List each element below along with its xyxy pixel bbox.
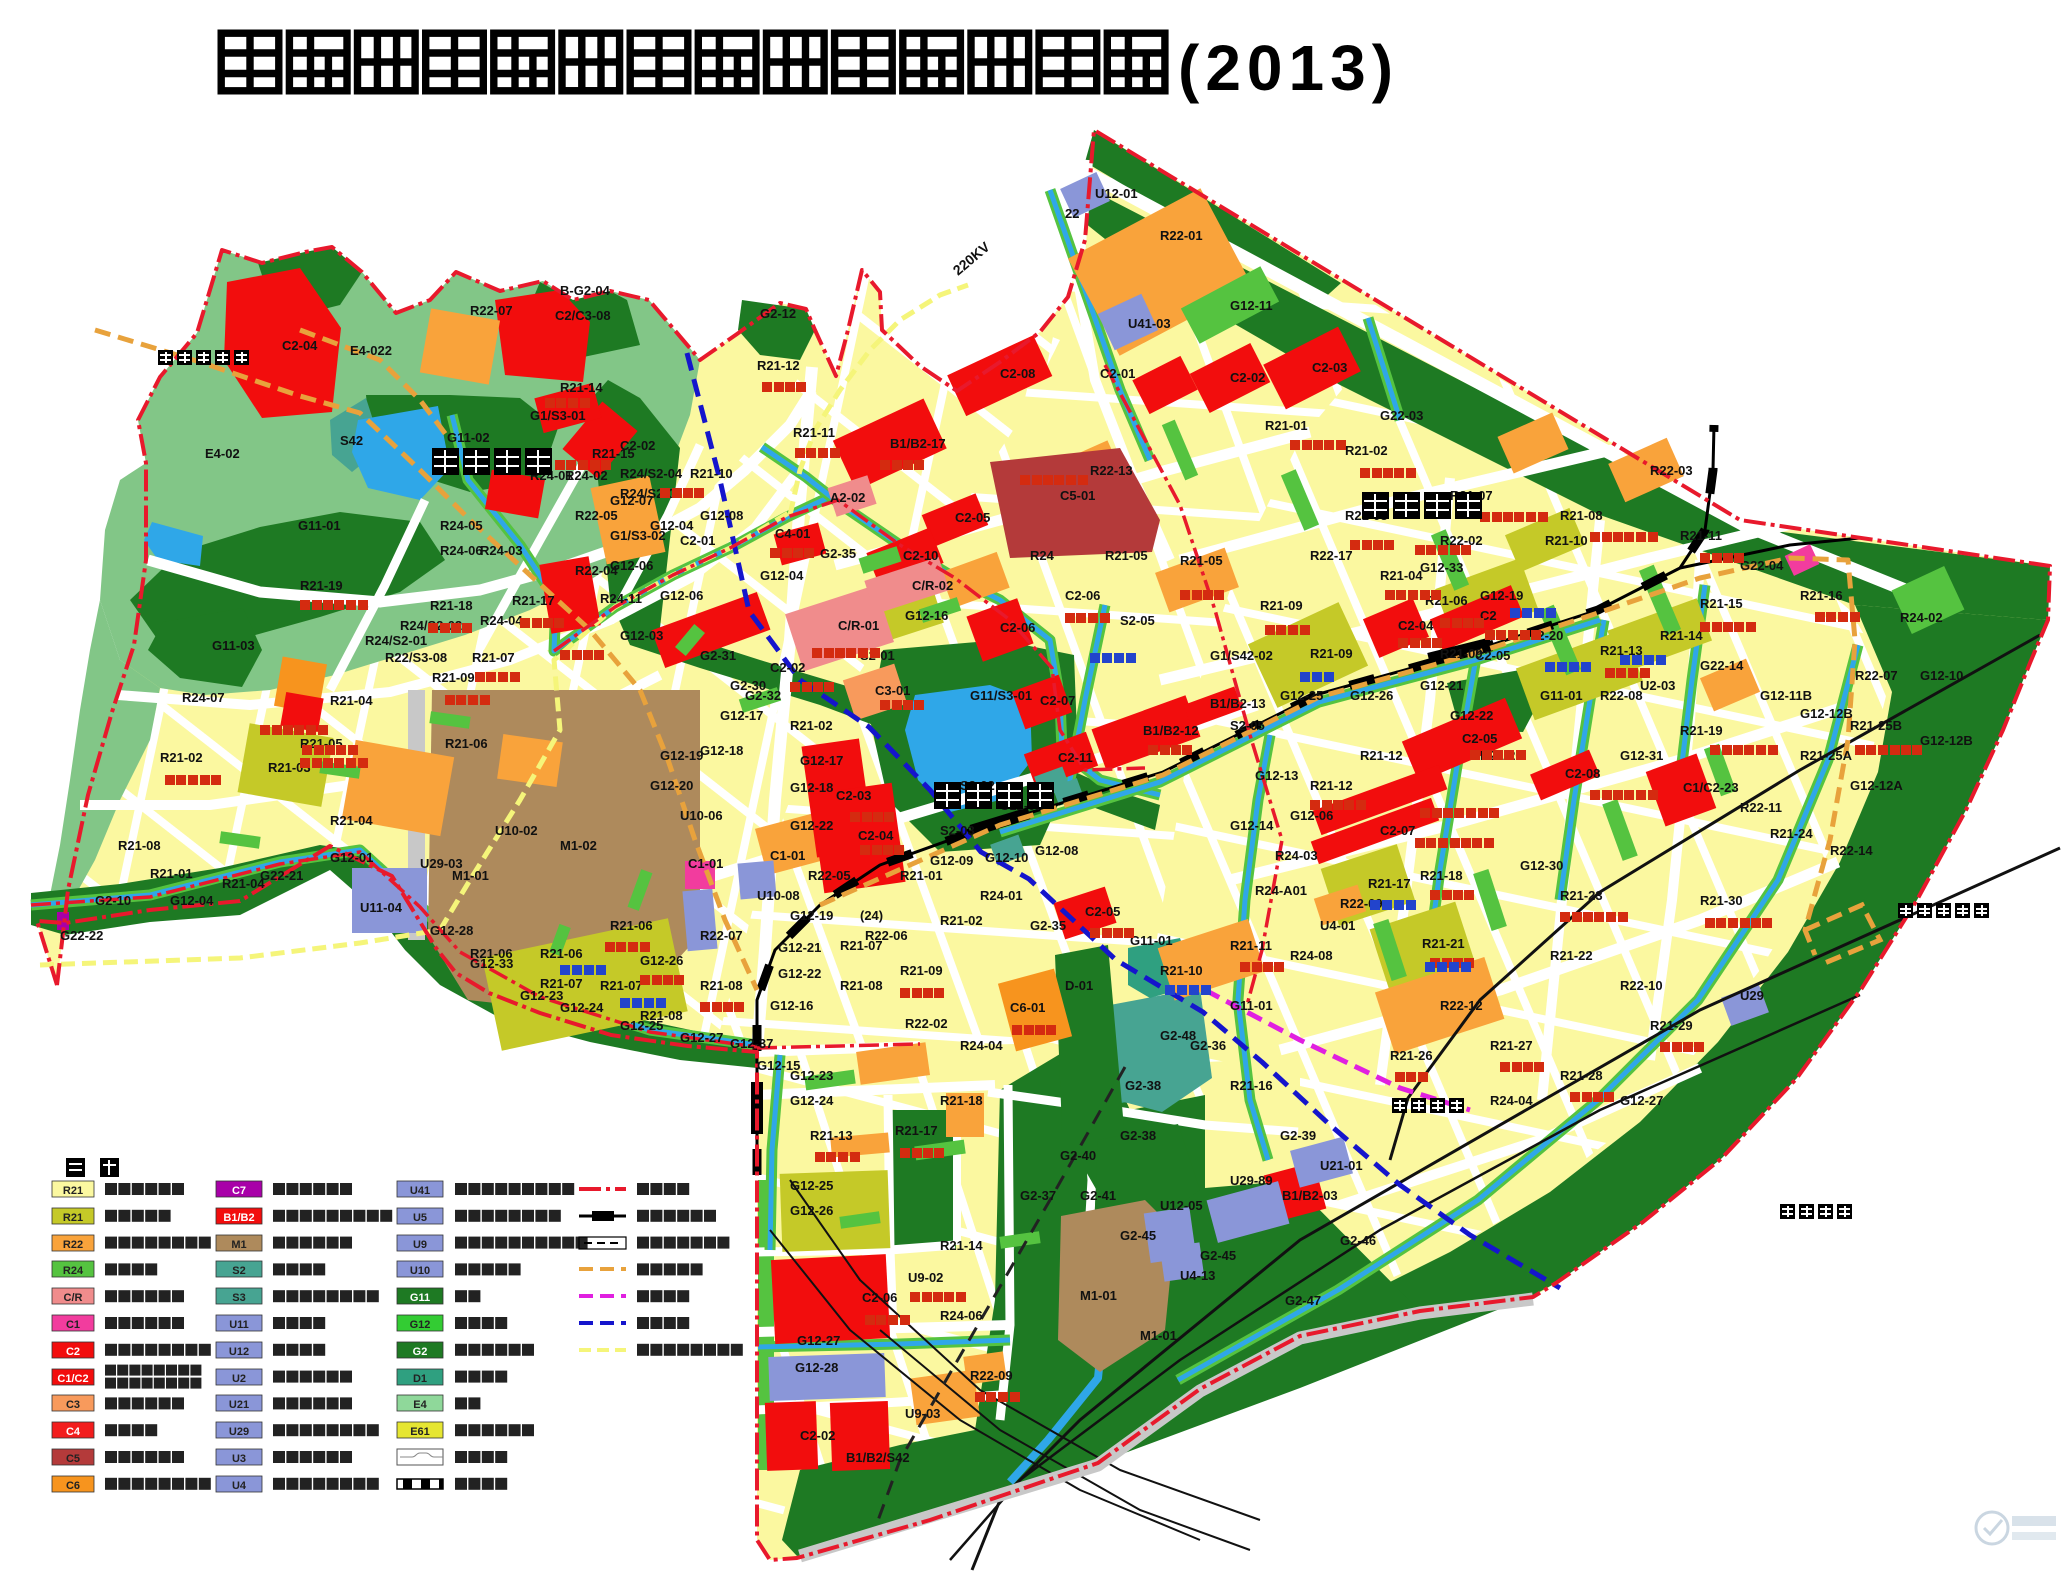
svg-text:U21: U21 [229, 1399, 249, 1411]
svg-text:G12-19: G12-19 [660, 748, 703, 763]
svg-text:G12-12B: G12-12B [1800, 706, 1853, 721]
svg-text:G1/S42-02: G1/S42-02 [1210, 648, 1273, 663]
svg-text:R21-02: R21-02 [940, 913, 983, 928]
svg-text:U11: U11 [229, 1319, 249, 1331]
svg-text:C2-08: C2-08 [1000, 366, 1035, 381]
svg-text:R21-09: R21-09 [1260, 598, 1303, 613]
svg-text:G11/S3-01: G11/S3-01 [970, 688, 1032, 703]
svg-text:G2-10: G2-10 [95, 893, 131, 908]
svg-text:R21-16: R21-16 [1230, 1078, 1273, 1093]
svg-text:B1/B2: B1/B2 [223, 1212, 254, 1224]
svg-text:C2-08: C2-08 [1565, 766, 1600, 781]
svg-text:R22-09: R22-09 [970, 1368, 1013, 1383]
svg-text:R21-05: R21-05 [1105, 548, 1148, 563]
svg-text:G12-06: G12-06 [660, 588, 703, 603]
svg-text:R21-17: R21-17 [895, 1123, 938, 1138]
svg-text:R21-09: R21-09 [432, 670, 475, 685]
svg-text:C1: C1 [66, 1319, 80, 1331]
svg-text:G12-25: G12-25 [1280, 688, 1323, 703]
svg-text:R21-27: R21-27 [1490, 1038, 1533, 1053]
svg-text:R21-12: R21-12 [757, 358, 800, 373]
svg-text:R21-29: R21-29 [1650, 1018, 1693, 1033]
svg-text:R21-13: R21-13 [810, 1128, 853, 1143]
svg-text:R21-09: R21-09 [900, 963, 943, 978]
svg-text:R21-04: R21-04 [1380, 568, 1423, 583]
svg-text:R22-14: R22-14 [1830, 843, 1873, 858]
svg-text:G2-38: G2-38 [1125, 1078, 1161, 1093]
svg-text:R24-07: R24-07 [182, 690, 225, 705]
svg-text:R21: R21 [63, 1212, 83, 1224]
svg-text:R22-11: R22-11 [1740, 800, 1782, 815]
svg-text:S42: S42 [340, 433, 363, 448]
svg-text:G22-04: G22-04 [1740, 558, 1784, 573]
svg-text:R22-08: R22-08 [1600, 688, 1643, 703]
svg-text:R21-19: R21-19 [1680, 723, 1723, 738]
svg-text:U9: U9 [413, 1239, 427, 1251]
svg-text:R21-05: R21-05 [1180, 553, 1223, 568]
svg-text:G22-14: G22-14 [1700, 658, 1744, 673]
svg-text:G11-01: G11-01 [1540, 688, 1583, 703]
svg-text:C2-10: C2-10 [903, 548, 938, 563]
svg-text:R24-04: R24-04 [480, 613, 523, 628]
svg-text:U21-01: U21-01 [1320, 1158, 1363, 1173]
svg-text:U2-03: U2-03 [1640, 678, 1675, 693]
svg-text:R21-09: R21-09 [1310, 646, 1353, 661]
svg-text:M1: M1 [231, 1239, 246, 1251]
svg-text:R21-02: R21-02 [160, 750, 203, 765]
svg-text:C1-01: C1-01 [770, 848, 805, 863]
svg-text:G12-01: G12-01 [330, 850, 373, 865]
svg-text:G12-04: G12-04 [760, 568, 804, 583]
svg-text:U10-06: U10-06 [680, 808, 723, 823]
svg-text:R24-02: R24-02 [1900, 610, 1943, 625]
svg-text:R22-05: R22-05 [808, 868, 851, 883]
svg-text:G2-45: G2-45 [1120, 1228, 1156, 1243]
svg-text:G2-45: G2-45 [1200, 1248, 1236, 1263]
svg-text:U2: U2 [232, 1373, 246, 1385]
svg-text:R22-13: R22-13 [1090, 463, 1133, 478]
svg-text:C2-07: C2-07 [1040, 693, 1075, 708]
svg-text:B1/B2/S42: B1/B2/S42 [846, 1450, 910, 1465]
svg-text:C3: C3 [66, 1399, 80, 1411]
svg-text:G12-04: G12-04 [650, 518, 694, 533]
svg-text:R21-04: R21-04 [222, 876, 265, 891]
svg-text:C2-01: C2-01 [1100, 366, 1135, 381]
svg-text:R21-10: R21-10 [1160, 963, 1203, 978]
svg-text:C2-11: C2-11 [1058, 750, 1093, 765]
svg-text:G2: G2 [413, 1346, 428, 1358]
svg-text:G12-24: G12-24 [560, 1000, 604, 1015]
svg-text:R24-01: R24-01 [980, 888, 1023, 903]
svg-text:G2-37: G2-37 [1020, 1188, 1056, 1203]
svg-text:R24-08: R24-08 [1290, 948, 1333, 963]
svg-text:R24-02: R24-02 [565, 468, 608, 483]
svg-text:R21-02: R21-02 [1345, 443, 1388, 458]
svg-text:C2-03: C2-03 [1312, 360, 1347, 375]
svg-text:U12: U12 [229, 1346, 249, 1358]
svg-text:G12-10: G12-10 [1920, 668, 1963, 683]
svg-text:C2-04: C2-04 [858, 828, 894, 843]
svg-text:G2-35: G2-35 [1030, 918, 1066, 933]
svg-text:S2-03: S2-03 [940, 823, 975, 838]
svg-text:G12-03: G12-03 [620, 628, 663, 643]
svg-text:R21-10: R21-10 [690, 466, 733, 481]
svg-text:R24/S2-01: R24/S2-01 [365, 633, 427, 648]
svg-text:22: 22 [1065, 206, 1079, 221]
svg-text:G12-08: G12-08 [700, 508, 743, 523]
svg-text:(24): (24) [860, 908, 883, 923]
svg-text:G12-37: G12-37 [730, 1036, 773, 1051]
svg-text:G12-21: G12-21 [1420, 678, 1463, 693]
svg-text:C5: C5 [66, 1453, 80, 1465]
svg-text:G12-24: G12-24 [790, 1093, 834, 1108]
svg-text:C2-05: C2-05 [955, 510, 990, 525]
svg-text:R21-02: R21-02 [790, 718, 833, 733]
svg-text:D1: D1 [413, 1373, 427, 1385]
svg-text:R22-10: R22-10 [1620, 978, 1663, 993]
svg-text:U4-13: U4-13 [1180, 1268, 1215, 1283]
svg-text:G2-31: G2-31 [700, 648, 736, 663]
svg-text:C4-01: C4-01 [775, 526, 810, 541]
svg-text:R22-17: R22-17 [1310, 548, 1353, 563]
svg-text:R22/S3-08: R22/S3-08 [385, 650, 447, 665]
svg-text:C2-05: C2-05 [1475, 648, 1510, 663]
svg-text:G12-22: G12-22 [1450, 708, 1493, 723]
svg-text:G12-17: G12-17 [720, 708, 763, 723]
svg-text:R22-12: R22-12 [1440, 998, 1483, 1013]
svg-text:R21-04: R21-04 [330, 813, 373, 828]
svg-text:G11-02: G11-02 [447, 430, 490, 445]
svg-text:R24-03: R24-03 [480, 543, 523, 558]
svg-text:R22: R22 [63, 1239, 83, 1251]
svg-text:C4: C4 [66, 1426, 81, 1438]
svg-text:R21-23: R21-23 [1560, 888, 1603, 903]
svg-text:C1/C2-23: C1/C2-23 [1683, 780, 1739, 795]
svg-text:R24: R24 [63, 1265, 84, 1277]
svg-text:R21-28: R21-28 [1560, 1068, 1603, 1083]
svg-text:M1-01: M1-01 [1080, 1288, 1117, 1303]
svg-text:(2013): (2013) [1178, 32, 1399, 104]
svg-text:R22-07: R22-07 [700, 928, 743, 943]
svg-text:B1/B2-03: B1/B2-03 [1282, 1188, 1338, 1203]
svg-text:G2-35: G2-35 [820, 546, 856, 561]
svg-text:C2/C3-08: C2/C3-08 [555, 308, 611, 323]
svg-text:G12-26: G12-26 [1350, 688, 1393, 703]
svg-text:R21-06: R21-06 [540, 946, 583, 961]
svg-text:C2-05: C2-05 [1085, 904, 1120, 919]
svg-text:G12-18: G12-18 [700, 743, 743, 758]
svg-text:G12-06: G12-06 [610, 558, 653, 573]
svg-text:E4-022: E4-022 [350, 343, 392, 358]
svg-text:G12-06: G12-06 [1290, 808, 1333, 823]
svg-text:U9-02: U9-02 [908, 1270, 943, 1285]
svg-text:U5: U5 [413, 1212, 427, 1224]
svg-text:G11-03: G11-03 [212, 638, 255, 653]
svg-text:C5-01: C5-01 [1060, 488, 1095, 503]
svg-text:U10-02: U10-02 [495, 823, 538, 838]
svg-text:U4-01: U4-01 [1320, 918, 1355, 933]
svg-text:D-01: D-01 [1065, 978, 1093, 993]
svg-text:R21-07: R21-07 [600, 978, 643, 993]
svg-text:R21-18: R21-18 [430, 598, 473, 613]
svg-text:M1-01: M1-01 [452, 868, 489, 883]
svg-text:G2-39: G2-39 [1280, 1128, 1316, 1143]
svg-text:G12-23: G12-23 [520, 988, 563, 1003]
svg-text:R21-18: R21-18 [940, 1093, 983, 1108]
svg-text:G12-20: G12-20 [650, 778, 693, 793]
svg-text:G12-28: G12-28 [430, 923, 473, 938]
svg-text:G12: G12 [410, 1319, 431, 1331]
svg-text:R21-15: R21-15 [1700, 596, 1743, 611]
svg-text:C2-02: C2-02 [1230, 370, 1265, 385]
svg-text:C2-06: C2-06 [1000, 620, 1035, 635]
svg-text:C2-04: C2-04 [1398, 618, 1434, 633]
svg-text:G12-11: G12-11 [1230, 298, 1273, 313]
svg-text:U29: U29 [1740, 988, 1764, 1003]
svg-text:R22-07: R22-07 [1855, 668, 1898, 683]
svg-text:E61: E61 [410, 1426, 430, 1438]
svg-text:G12-12A: G12-12A [1850, 778, 1903, 793]
svg-text:R21-10: R21-10 [1545, 533, 1588, 548]
svg-text:G12-09: G12-09 [930, 853, 973, 868]
svg-text:G2-12: G2-12 [760, 306, 796, 321]
svg-text:G12-19: G12-19 [790, 908, 833, 923]
svg-text:C/R-02: C/R-02 [912, 578, 953, 593]
svg-text:C2-02: C2-02 [800, 1428, 835, 1443]
svg-text:R21: R21 [63, 1185, 83, 1197]
svg-text:R22-01: R22-01 [1160, 228, 1203, 243]
svg-text:R21-08: R21-08 [700, 978, 743, 993]
svg-text:R24-06: R24-06 [940, 1308, 983, 1323]
svg-text:U3: U3 [232, 1453, 246, 1465]
svg-text:R24/S2-04: R24/S2-04 [620, 466, 683, 481]
svg-text:S2: S2 [232, 1265, 245, 1277]
svg-text:C7: C7 [232, 1185, 246, 1197]
svg-text:C2-01: C2-01 [680, 533, 715, 548]
svg-text:R24-11: R24-11 [600, 591, 642, 606]
svg-text:G12-16: G12-16 [905, 608, 948, 623]
svg-text:G12-33: G12-33 [1420, 560, 1463, 575]
svg-text:G2-46: G2-46 [1340, 1233, 1376, 1248]
svg-text:G11-01: G11-01 [298, 518, 341, 533]
svg-text:R21-24: R21-24 [1770, 826, 1813, 841]
svg-text:G2-40: G2-40 [1060, 1148, 1096, 1163]
svg-text:G12-08: G12-08 [1035, 843, 1078, 858]
svg-text:R22-05: R22-05 [575, 508, 618, 523]
svg-text:R24-A01: R24-A01 [1255, 883, 1307, 898]
svg-text:G12-22: G12-22 [778, 966, 821, 981]
svg-text:U10: U10 [410, 1265, 430, 1277]
svg-text:G12-25: G12-25 [620, 1018, 663, 1033]
svg-text:G12-13: G12-13 [1255, 768, 1298, 783]
svg-text:C6-01: C6-01 [1010, 1000, 1045, 1015]
svg-text:R21-17: R21-17 [512, 593, 555, 608]
svg-text:U29-89: U29-89 [1230, 1173, 1273, 1188]
svg-text:C2-03: C2-03 [836, 788, 871, 803]
svg-text:B1/B2-13: B1/B2-13 [1210, 696, 1266, 711]
svg-text:G12-11B: G12-11B [1760, 688, 1812, 703]
svg-text:R21-08: R21-08 [118, 838, 161, 853]
svg-text:G12-17: G12-17 [800, 753, 843, 768]
svg-text:U12-05: U12-05 [1160, 1198, 1203, 1213]
svg-text:B1/B2-12: B1/B2-12 [1143, 723, 1199, 738]
svg-text:R21-18: R21-18 [1420, 868, 1463, 883]
svg-text:R24-04: R24-04 [1490, 1093, 1533, 1108]
svg-text:G11: G11 [410, 1292, 430, 1304]
svg-text:G1/S3-01: G1/S3-01 [530, 408, 586, 423]
svg-text:R21-19: R21-19 [300, 578, 343, 593]
svg-text:G2-30: G2-30 [730, 678, 766, 693]
svg-text:R21-26: R21-26 [1390, 1048, 1433, 1063]
svg-text:U12-01: U12-01 [1095, 186, 1138, 201]
svg-text:R21-25B: R21-25B [1850, 718, 1902, 733]
svg-text:S3: S3 [232, 1292, 245, 1304]
svg-text:G22-03: G22-03 [1380, 408, 1423, 423]
svg-text:C6: C6 [66, 1480, 80, 1492]
svg-text:R22-07: R22-07 [470, 303, 513, 318]
svg-text:R21-25A: R21-25A [1800, 748, 1853, 763]
svg-text:G11-01: G11-01 [1230, 998, 1273, 1013]
svg-text:C1/C2: C1/C2 [57, 1373, 88, 1385]
svg-text:R21-07: R21-07 [472, 650, 515, 665]
svg-text:U9-03: U9-03 [905, 1406, 940, 1421]
svg-text:C2-02: C2-02 [770, 660, 805, 675]
svg-text:C2-02: C2-02 [620, 438, 655, 453]
svg-text:G22-21: G22-21 [260, 868, 303, 883]
svg-text:R24: R24 [1030, 548, 1055, 563]
svg-text:R24-03: R24-03 [1275, 848, 1318, 863]
svg-text:R21-22: R21-22 [1550, 948, 1593, 963]
svg-text:C2-04: C2-04 [282, 338, 318, 353]
svg-text:U4: U4 [232, 1480, 247, 1492]
svg-text:C2-05: C2-05 [1462, 731, 1497, 746]
svg-text:R21-21: R21-21 [1422, 936, 1465, 951]
svg-text:R24-06: R24-06 [440, 543, 483, 558]
svg-text:B1/B2-17: B1/B2-17 [890, 436, 946, 451]
svg-text:E4: E4 [413, 1399, 427, 1411]
svg-text:R21-01: R21-01 [1265, 418, 1308, 433]
svg-text:U41-03: U41-03 [1128, 316, 1171, 331]
svg-text:S2-05: S2-05 [1120, 613, 1155, 628]
svg-text:R21-01: R21-01 [150, 866, 193, 881]
svg-text:G12-04: G12-04 [170, 893, 214, 908]
svg-text:R21-12: R21-12 [1360, 748, 1403, 763]
svg-text:R21-08: R21-08 [840, 978, 883, 993]
svg-text:R21-14: R21-14 [1660, 628, 1703, 643]
svg-text:R21-16: R21-16 [1800, 588, 1843, 603]
svg-text:C/R-01: C/R-01 [838, 618, 879, 633]
svg-text:R21-07: R21-07 [840, 938, 883, 953]
svg-text:U11-04: U11-04 [360, 900, 403, 915]
svg-text:S2-05: S2-05 [1230, 718, 1265, 733]
svg-text:R21-14: R21-14 [940, 1238, 983, 1253]
svg-text:U10-08: U10-08 [757, 888, 800, 903]
svg-text:G12-25: G12-25 [790, 1178, 833, 1193]
svg-text:R24-04: R24-04 [960, 1038, 1003, 1053]
svg-text:G12-14: G12-14 [1230, 818, 1274, 833]
svg-text:U41: U41 [410, 1185, 430, 1197]
svg-text:G12-26: G12-26 [640, 953, 683, 968]
svg-text:G12-21: G12-21 [778, 940, 821, 955]
svg-text:R21-06: R21-06 [445, 736, 488, 751]
svg-text:E4-02: E4-02 [205, 446, 240, 461]
svg-text:G22-22: G22-22 [60, 928, 103, 943]
svg-text:C2: C2 [66, 1346, 80, 1358]
svg-text:R21-17: R21-17 [1368, 876, 1411, 891]
svg-text:M1-02: M1-02 [560, 838, 597, 853]
svg-text:G12-15: G12-15 [757, 1058, 800, 1073]
svg-text:G12-28: G12-28 [795, 1360, 838, 1375]
svg-text:C3-01: C3-01 [875, 683, 910, 698]
svg-text:G11-01: G11-01 [1130, 933, 1173, 948]
svg-text:G12-27: G12-27 [797, 1333, 840, 1348]
svg-text:G12-26: G12-26 [790, 1203, 833, 1218]
svg-text:G12-10: G12-10 [985, 850, 1028, 865]
svg-text:G2-38: G2-38 [1120, 1128, 1156, 1143]
svg-text:R21-04: R21-04 [330, 693, 373, 708]
svg-text:G12-22: G12-22 [790, 818, 833, 833]
svg-text:G12-19: G12-19 [1480, 588, 1523, 603]
svg-text:R21-12: R21-12 [1310, 778, 1353, 793]
svg-text:R22-03: R22-03 [1650, 463, 1693, 478]
svg-text:R21-06: R21-06 [610, 918, 653, 933]
svg-text:M1-01: M1-01 [1140, 1328, 1177, 1343]
svg-text:G12-27: G12-27 [680, 1030, 723, 1045]
svg-text:G2-36: G2-36 [1190, 1038, 1226, 1053]
svg-text:R24-05: R24-05 [440, 518, 483, 533]
svg-text:G12-33: G12-33 [470, 956, 513, 971]
svg-text:C2-07: C2-07 [1380, 823, 1415, 838]
svg-text:R21-01: R21-01 [900, 868, 943, 883]
svg-text:R21-08: R21-08 [1560, 508, 1603, 523]
svg-text:G12-30: G12-30 [1520, 858, 1563, 873]
svg-text:G12-31: G12-31 [1620, 748, 1663, 763]
svg-text:R21-11: R21-11 [1680, 528, 1722, 543]
svg-text:U29: U29 [229, 1426, 249, 1438]
svg-text:G2-41: G2-41 [1080, 1188, 1116, 1203]
svg-text:C2-06: C2-06 [862, 1290, 897, 1305]
svg-text:B-G2-04: B-G2-04 [560, 283, 611, 298]
svg-text:A2-02: A2-02 [830, 490, 865, 505]
svg-text:C/R: C/R [64, 1292, 83, 1304]
svg-text:G2-47: G2-47 [1285, 1293, 1321, 1308]
svg-text:G12-16: G12-16 [770, 998, 813, 1013]
svg-text:R22-02: R22-02 [905, 1016, 948, 1031]
svg-text:R21-14: R21-14 [560, 380, 603, 395]
svg-text:G12-12B: G12-12B [1920, 733, 1973, 748]
svg-text:R21-30: R21-30 [1700, 893, 1743, 908]
svg-text:G12-18: G12-18 [790, 780, 833, 795]
svg-text:R21-11: R21-11 [1230, 938, 1272, 953]
svg-text:R21-11: R21-11 [793, 425, 835, 440]
svg-text:C1-01: C1-01 [688, 856, 723, 871]
svg-text:G12-27: G12-27 [1620, 1093, 1663, 1108]
svg-text:C2-06: C2-06 [1065, 588, 1100, 603]
